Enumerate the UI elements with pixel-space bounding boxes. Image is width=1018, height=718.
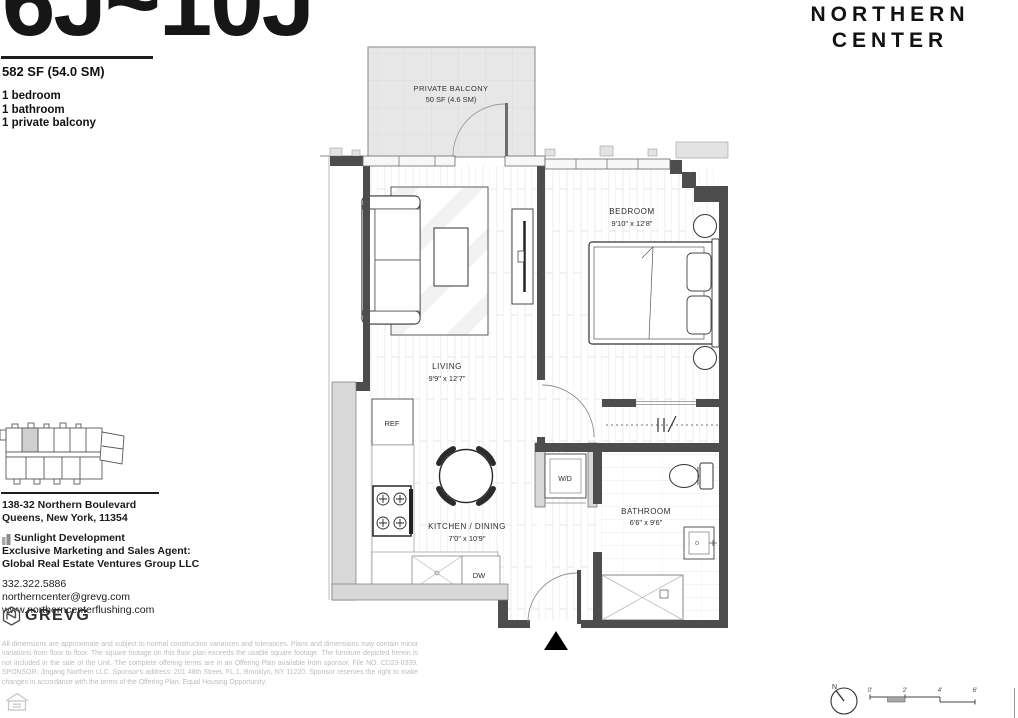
grevg-hexagon-icon xyxy=(2,606,21,626)
unit-features: 1 bedroom 1 bathroom 1 private balcony xyxy=(2,90,96,131)
dining-table xyxy=(439,449,493,503)
address-line2: Queens, New York, 11354 xyxy=(2,512,232,525)
agent-label: Exclusive Marketing and Sales Agent: xyxy=(2,545,232,558)
kitchen-label: KITCHEN / DINING xyxy=(428,522,506,531)
scale-tick-0: 0' xyxy=(868,687,873,694)
living-label: LIVING xyxy=(432,362,462,371)
grevg-wordmark: GREVG xyxy=(25,607,90,625)
unit-area: 582 SF (54.0 SM) xyxy=(2,64,105,79)
balcony: PRIVATE BALCONY 50 SF (4.6 SM) xyxy=(368,47,535,157)
toilet xyxy=(670,463,714,489)
shower xyxy=(602,575,683,620)
email: northerncenter@grevg.com xyxy=(2,591,232,604)
feature-balcony: 1 private balcony xyxy=(2,117,96,131)
equal-housing-icon xyxy=(4,692,30,712)
entry-marker-triangle xyxy=(544,631,568,650)
wall-kitchen-west xyxy=(332,382,356,600)
scale-tick-4: 4' xyxy=(938,687,943,694)
compass: N xyxy=(831,684,857,714)
contact-block: 138-32 Northern Boulevard Queens, New Yo… xyxy=(2,499,232,617)
balcony-area-label: 50 SF (4.6 SM) xyxy=(426,95,477,104)
scale-bar: 0' 2' 4' 6' xyxy=(868,687,978,705)
developer-name: Sunlight Development xyxy=(14,532,125,545)
nightstand xyxy=(694,215,717,238)
balcony-door-leaf xyxy=(505,103,508,157)
sofa xyxy=(362,196,420,324)
address-line1: 138-32 Northern Boulevard xyxy=(2,499,232,512)
scale-tick-2: 2' xyxy=(903,687,908,694)
grevg-logo: GREVG xyxy=(2,606,90,626)
wd-label: W/D xyxy=(558,476,572,483)
nightstand xyxy=(694,347,717,370)
title-divider xyxy=(1,56,153,59)
phone: 332.322.5886 xyxy=(2,578,232,591)
wall-bottom-right xyxy=(581,620,728,628)
floorplan-sheet: 6J~10J 582 SF (54.0 SM) 1 bedroom 1 bath… xyxy=(0,0,1018,718)
floorplan-drawing: PRIVATE BALCONY 50 SF (4.6 SM) xyxy=(318,40,738,652)
living-dims: 9'9" x 12'7" xyxy=(429,374,466,383)
vanity-sink xyxy=(684,527,717,559)
bathroom-label: BATHROOM xyxy=(621,507,671,516)
unit-title: 6J~10J xyxy=(2,0,313,58)
compass-and-scale: N 0' 2' 4' 6' xyxy=(820,680,1016,716)
entry-door-leaf xyxy=(577,570,581,624)
stove xyxy=(373,486,413,536)
building-logo: NORTHERN CENTER xyxy=(790,2,990,54)
building-keyplan xyxy=(0,416,128,486)
headboard xyxy=(712,239,719,347)
building-name-line2: CENTER xyxy=(790,28,990,54)
bed xyxy=(589,239,719,347)
developer-building-icon xyxy=(2,534,11,545)
bathroom-dims: 6'6" x 9'6" xyxy=(630,518,663,527)
feature-bedroom: 1 bedroom xyxy=(2,90,96,104)
bedroom-label: BEDROOM xyxy=(609,207,655,216)
wall-right xyxy=(719,200,728,628)
agent-name: Global Real Estate Ventures Group LLC xyxy=(2,558,232,571)
dw-label: DW xyxy=(473,571,486,580)
wall-closet-bathroom xyxy=(535,443,728,452)
wall-left-upper xyxy=(363,156,370,382)
pillow xyxy=(687,253,711,291)
scale-tick-6: 6' xyxy=(973,687,978,694)
compass-north-label: N xyxy=(832,684,837,691)
feature-bathroom: 1 bathroom xyxy=(2,104,96,118)
wall-bathroom-left xyxy=(593,552,602,620)
page-edge-mark xyxy=(1014,688,1015,718)
address-divider xyxy=(1,492,159,494)
ref-label: REF xyxy=(385,419,400,428)
kitchen-dims: 7'0" x 10'9" xyxy=(449,534,486,543)
building-name-line1: NORTHERN xyxy=(790,2,990,28)
coffee-table xyxy=(434,228,468,286)
wall-living-bedroom xyxy=(537,166,545,380)
keyplan-highlighted-unit xyxy=(22,428,38,452)
pillow xyxy=(687,296,711,334)
balcony-label: PRIVATE BALCONY xyxy=(414,84,489,93)
tv-console xyxy=(512,209,533,304)
wall-kitchen-south xyxy=(332,584,508,600)
bedroom-dims: 9'10" x 12'8" xyxy=(611,219,652,228)
